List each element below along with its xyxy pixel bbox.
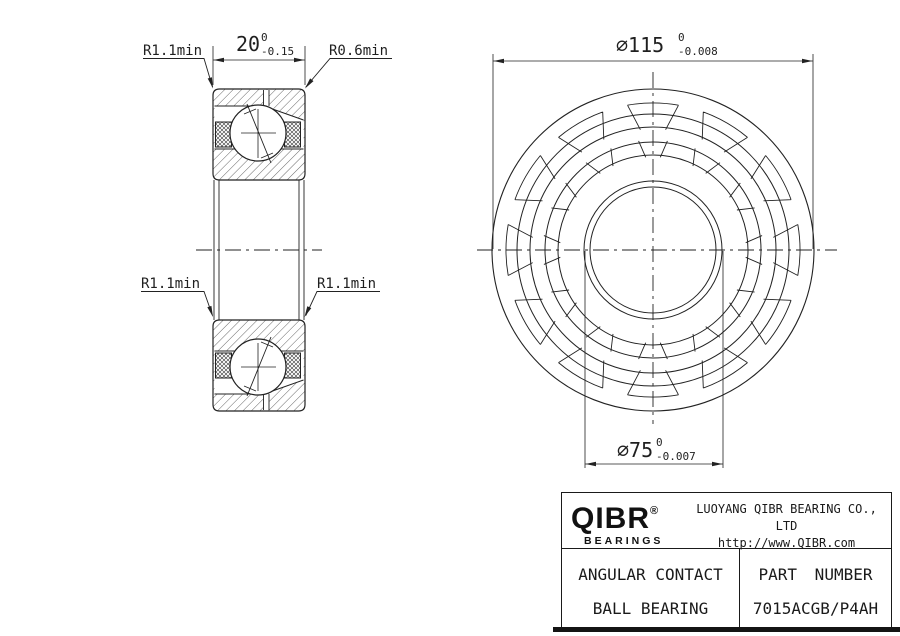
title-block-header-row: QIBR® BEARINGS LUOYANG QIBR BEARING CO.,… [562, 493, 891, 548]
width-tol-lower: -0.15 [261, 45, 294, 58]
bore-value: ⌀75 [617, 438, 653, 462]
radius-label-top-left: R1.1min [143, 43, 202, 59]
logo-wordmark: QIBR® [571, 496, 682, 534]
sheet-border-bottom [553, 627, 900, 632]
cage-right-bottom [285, 353, 301, 378]
cage-left-bottom [216, 353, 232, 378]
bore-tol-lower: -0.007 [656, 450, 696, 463]
cage-right-top [285, 122, 301, 147]
bore-diameter-dimension: ⌀75 0 -0.007 [585, 251, 723, 468]
part-number-cell: PART NUMBER 7015ACGB/P4AH [739, 549, 891, 627]
product-description-cell: ANGULAR CONTACT BALL BEARING [562, 549, 739, 627]
section-bottom-half [213, 320, 305, 411]
od-value: ⌀115 [616, 33, 664, 57]
title-block: QIBR® BEARINGS LUOYANG QIBR BEARING CO.,… [561, 492, 892, 628]
product-line1: ANGULAR CONTACT [562, 558, 739, 592]
brand-logo: QIBR® BEARINGS [562, 493, 682, 548]
logo-tagline: BEARINGS [584, 535, 682, 547]
front-view: ⌀115 0 -0.008 ⌀75 0 -0.007 [477, 31, 837, 468]
bearing-drawing-sheet: 20 0 -0.15 R1.1min R0.6min R1.1min R1.1m… [0, 0, 900, 636]
bore-tol-upper: 0 [656, 436, 663, 449]
part-number-value: 7015ACGB/P4AH [740, 592, 891, 626]
title-block-detail-row: ANGULAR CONTACT BALL BEARING PART NUMBER… [562, 548, 891, 627]
section-top-half [213, 89, 305, 180]
width-value: 20 [236, 32, 260, 56]
radius-label-top-right: R0.6min [329, 43, 388, 59]
registered-trademark-icon: ® [650, 505, 658, 517]
width-tol-upper: 0 [261, 31, 268, 44]
radius-label-mid-left: R1.1min [141, 276, 200, 292]
company-info: LUOYANG QIBR BEARING CO., LTD http://www… [682, 493, 891, 548]
od-tol-upper: 0 [678, 31, 685, 44]
section-view: 20 0 -0.15 R1.1min R0.6min R1.1min R1.1m… [141, 31, 392, 411]
logo-text: QIBR [571, 502, 650, 535]
width-dimension: 20 0 -0.15 [213, 31, 305, 85]
cage-left-top [216, 122, 232, 147]
company-name: LUOYANG QIBR BEARING CO., LTD [682, 501, 891, 535]
od-tol-lower: -0.008 [678, 45, 718, 58]
radius-label-mid-right: R1.1min [317, 276, 376, 292]
product-line2: BALL BEARING [562, 592, 739, 626]
part-number-label: PART NUMBER [740, 558, 891, 592]
